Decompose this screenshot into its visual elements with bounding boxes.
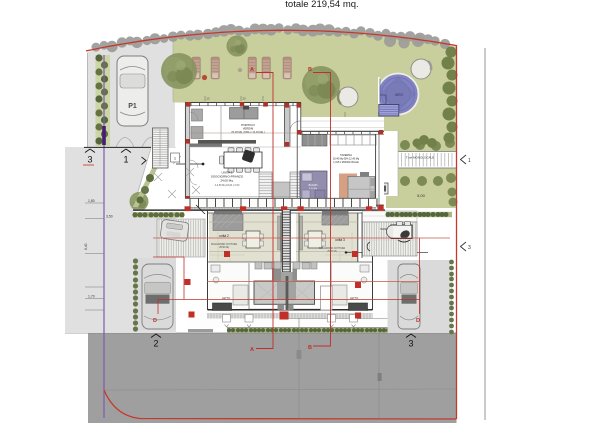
svg-text:3: 3 [408,339,413,349]
svg-text:4,20 Mq: 4,20 Mq [309,188,318,190]
svg-text:1,70: 1,70 [88,294,95,298]
svg-text:20,20 Mq. (60% x 12,16 Mq.): 20,20 Mq. (60% x 12,16 Mq.) [231,130,265,134]
svg-text:5,00: 5,00 [417,193,426,198]
svg-text:A 2,50 Mq 18,00 x 0,50: A 2,50 Mq 18,00 x 0,50 [215,184,240,187]
svg-text:D: D [416,318,420,324]
svg-text:6,40: 6,40 [84,243,88,250]
svg-text:3: 3 [468,245,471,251]
svg-text:D: D [153,318,157,324]
svg-text:TAVERNA: TAVERNA [340,153,352,157]
svg-text:1,80: 1,80 [88,199,95,203]
svg-text:VERDIM: VERDIM [243,127,254,131]
svg-text:totale 219,54 mq.: totale 219,54 mq. [285,0,358,10]
svg-text:PORTICO: PORTICO [241,123,255,127]
svg-text:25,50 Mq: 25,50 Mq [219,247,229,249]
svg-text:B: B [308,67,312,73]
svg-text:BAGNO: BAGNO [309,184,318,187]
svg-text:3: 3 [87,155,92,165]
svg-text:A: A [250,67,254,73]
svg-text:B: B [308,345,312,351]
svg-text:1,315 x MONOLOCALE: 1,315 x MONOLOCALE [333,161,359,164]
svg-text:1: 1 [468,158,471,164]
svg-text:1: 1 [123,155,128,165]
svg-text:P1: P1 [128,103,137,110]
svg-text:SOGGIORNO COTTURA: SOGGIORNO COTTURA [211,243,238,246]
svg-text:T.nei MONOLOCALE: T.nei MONOLOCALE [406,156,434,160]
svg-text:24,00 Mq.: 24,00 Mq. [220,179,234,183]
svg-text:unità 3: unità 3 [335,238,345,242]
svg-text:3,50: 3,50 [106,214,113,218]
svg-text:A: A [250,347,254,353]
svg-text:2: 2 [153,339,158,349]
svg-text:SOGGIORNO COTTURA: SOGGIORNO COTTURA [319,247,346,250]
svg-text:IDRO: IDRO [395,93,404,97]
svg-text:unità 2: unità 2 [219,234,229,238]
